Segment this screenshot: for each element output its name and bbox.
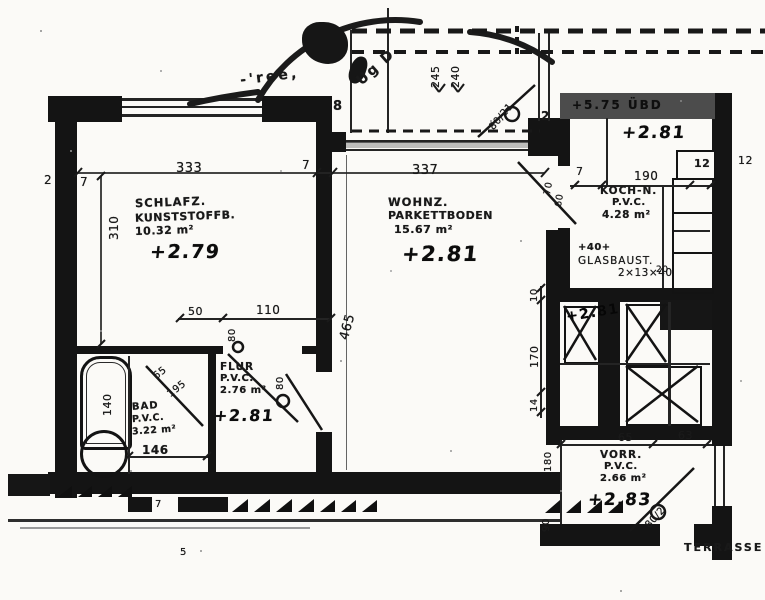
wall bbox=[528, 118, 560, 156]
room-area-vorr: 2.66 m² bbox=[600, 474, 646, 484]
kitchen-counter bbox=[672, 178, 714, 214]
room-floor-kochn: P.V.C. bbox=[612, 198, 646, 208]
room-level-kochn: +2.81 bbox=[621, 125, 686, 142]
wall bbox=[558, 118, 570, 166]
balcony-edge bbox=[548, 33, 550, 121]
room-level-vorr: +2.83 bbox=[587, 492, 652, 509]
stamp-smudge bbox=[302, 22, 348, 64]
partition-line bbox=[668, 302, 671, 426]
window bbox=[122, 106, 262, 108]
baseline bbox=[8, 519, 560, 522]
dim-label: 70 bbox=[543, 181, 555, 196]
window bbox=[714, 446, 716, 506]
room-level-wohnz: +2.81 bbox=[401, 244, 480, 265]
baseline bbox=[20, 527, 310, 529]
room-level-schlafz: +2.79 bbox=[149, 243, 221, 262]
wall bbox=[77, 346, 223, 354]
scan-noise bbox=[40, 30, 42, 32]
room-area-kochn: 4.28 m² bbox=[602, 210, 651, 221]
dimension-line bbox=[560, 444, 712, 446]
room-area-schlafz: 10.32 m² bbox=[135, 224, 194, 237]
dim-label: 65 bbox=[618, 432, 633, 443]
dim-label: 180 bbox=[544, 451, 554, 472]
ubd-band-label: +5.75 ÜBD bbox=[572, 99, 663, 111]
dim-label: 195 bbox=[166, 379, 188, 400]
dim-label: 333 bbox=[176, 162, 202, 175]
dim-label: 8 bbox=[333, 100, 343, 113]
room-floor-flur: P.V.C. bbox=[220, 374, 254, 384]
dimension-line bbox=[77, 172, 545, 174]
dim-label: 80 bbox=[276, 376, 286, 390]
kitchen-counter bbox=[672, 212, 714, 254]
dim-label: 12 bbox=[738, 155, 753, 166]
wall bbox=[332, 132, 346, 152]
dim-label: 2 bbox=[541, 110, 550, 122]
glasbaust-marker: +40+ bbox=[578, 243, 611, 253]
window-smudge bbox=[346, 142, 528, 148]
window bbox=[723, 446, 725, 506]
wall bbox=[546, 230, 560, 445]
corner-smudge bbox=[8, 474, 50, 496]
dim-label: 245 bbox=[430, 66, 441, 89]
washbasin bbox=[80, 430, 128, 478]
partition-line bbox=[560, 363, 710, 365]
shaft-cell bbox=[626, 304, 670, 366]
wall bbox=[316, 358, 332, 372]
wall bbox=[178, 497, 228, 512]
dim-label: 465 bbox=[338, 313, 357, 342]
dimension-line bbox=[100, 176, 102, 344]
floor-plan-scan: +5.75 ÜBD bbox=[0, 0, 765, 600]
wall bbox=[316, 432, 332, 476]
counter-line bbox=[674, 230, 710, 232]
dim-label: 110 bbox=[256, 304, 280, 316]
dim-label: 63 bbox=[678, 430, 693, 441]
room-floor-bad: P.V.C. bbox=[132, 413, 165, 425]
dim-label: 50 bbox=[188, 306, 203, 317]
room-floor-vorr: P.V.C. bbox=[604, 462, 638, 472]
dim-label: 12 bbox=[694, 158, 710, 169]
wall bbox=[128, 497, 152, 512]
room-name-kochn: KOCH-N. bbox=[600, 186, 657, 197]
dim-label: 5 bbox=[180, 548, 187, 558]
room-area-flur: 2.76 m² bbox=[220, 386, 266, 396]
dim-label: 7 bbox=[302, 159, 310, 171]
dim-label: 170 bbox=[529, 346, 540, 369]
dim-label: 20 bbox=[656, 266, 668, 275]
balcony-edge bbox=[538, 33, 540, 121]
balcony-edge bbox=[387, 8, 389, 133]
room-name-schlafz: SCHLAFZ. bbox=[135, 196, 206, 210]
kitchen-counter bbox=[672, 252, 714, 294]
shaft-cell bbox=[626, 366, 702, 426]
stamp-text: -'ree, bbox=[239, 66, 300, 87]
dim-label: 80/21 bbox=[488, 102, 516, 132]
partition-line bbox=[560, 440, 562, 524]
window bbox=[346, 149, 528, 151]
dim-label: 190 bbox=[634, 170, 658, 182]
dim-label: 60 bbox=[554, 193, 566, 208]
window bbox=[122, 98, 262, 101]
window bbox=[122, 114, 262, 117]
room-name-flur: FLUR bbox=[220, 362, 254, 373]
dim-label: 7 bbox=[576, 166, 584, 177]
wall bbox=[55, 96, 77, 498]
dim-label: 90 bbox=[542, 518, 552, 532]
room-name-vorr: VORR. bbox=[600, 450, 642, 461]
room-floor-schlafz: KUNSTSTOFFB. bbox=[135, 209, 236, 223]
room-floor-wohnz: PARKETTBODEN bbox=[388, 210, 493, 221]
dim-label: 337 bbox=[412, 164, 438, 177]
dim-label: 10 bbox=[530, 288, 540, 302]
dim-label: 2 bbox=[44, 174, 52, 186]
room-area-wohnz: 15.67 m² bbox=[394, 224, 453, 235]
wall bbox=[598, 302, 620, 428]
dim-label: 80 bbox=[228, 328, 238, 342]
dim-label: 146 bbox=[142, 444, 169, 456]
room-name-wohnz: WOHNZ. bbox=[388, 197, 448, 209]
dim-label: 240 bbox=[450, 66, 461, 89]
room-name-bad: BAD bbox=[132, 401, 159, 413]
wall bbox=[48, 472, 562, 494]
dim-label: 65 bbox=[152, 366, 169, 382]
partition-line bbox=[606, 118, 608, 186]
wall bbox=[540, 524, 660, 546]
dim-label: 140 bbox=[102, 394, 113, 417]
dim-label: 7 bbox=[80, 176, 88, 188]
room-level-flur: +2.81 bbox=[213, 408, 275, 424]
dimension-line bbox=[178, 318, 332, 320]
glasbaust-label: GLASBAUST. bbox=[578, 256, 653, 267]
dim-label: 310 bbox=[108, 216, 120, 240]
dim-label: 7 bbox=[155, 500, 162, 510]
terrasse-label: TERRASSE bbox=[684, 542, 763, 553]
wall bbox=[302, 346, 316, 354]
dim-label: 14 bbox=[530, 398, 540, 412]
room-area-bad: 3.22 m² bbox=[132, 424, 177, 437]
